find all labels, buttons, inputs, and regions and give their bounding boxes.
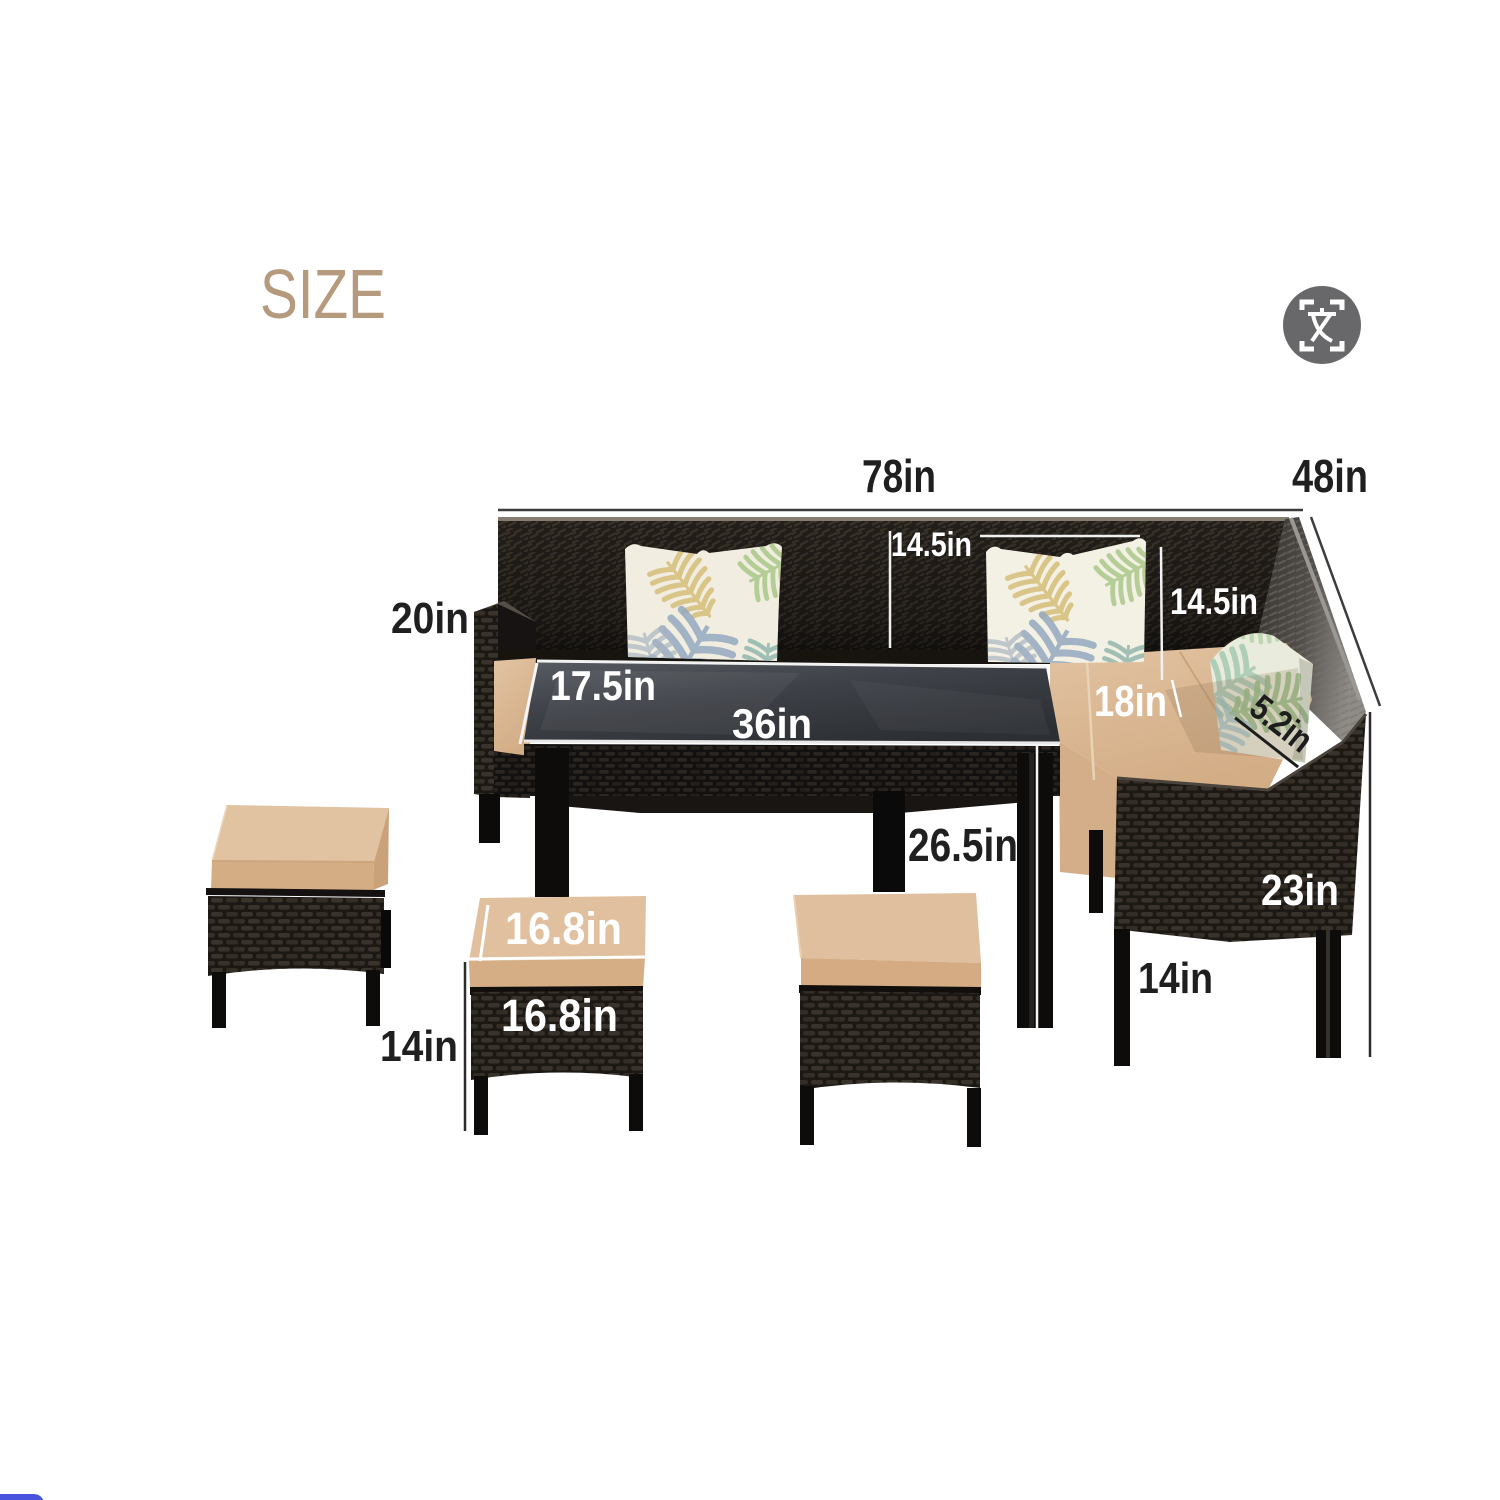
svg-text:23in: 23in [1261,866,1339,915]
svg-text:14.5in: 14.5in [1170,581,1258,622]
svg-text:SIZE: SIZE [260,255,386,333]
svg-text:17.5in: 17.5in [550,662,656,709]
svg-text:16.8in: 16.8in [501,990,618,1041]
svg-text:36in: 36in [732,700,812,747]
svg-text:18in: 18in [1094,677,1167,726]
svg-text:20in: 20in [391,594,469,643]
svg-text:48in: 48in [1292,450,1368,502]
svg-text:78in: 78in [862,450,936,502]
svg-text:14.5in: 14.5in [891,526,972,564]
svg-text:14in: 14in [380,1022,458,1071]
svg-text:26.5in: 26.5in [908,819,1018,871]
svg-text:14in: 14in [1138,954,1213,1003]
svg-text:16.8in: 16.8in [505,903,622,954]
